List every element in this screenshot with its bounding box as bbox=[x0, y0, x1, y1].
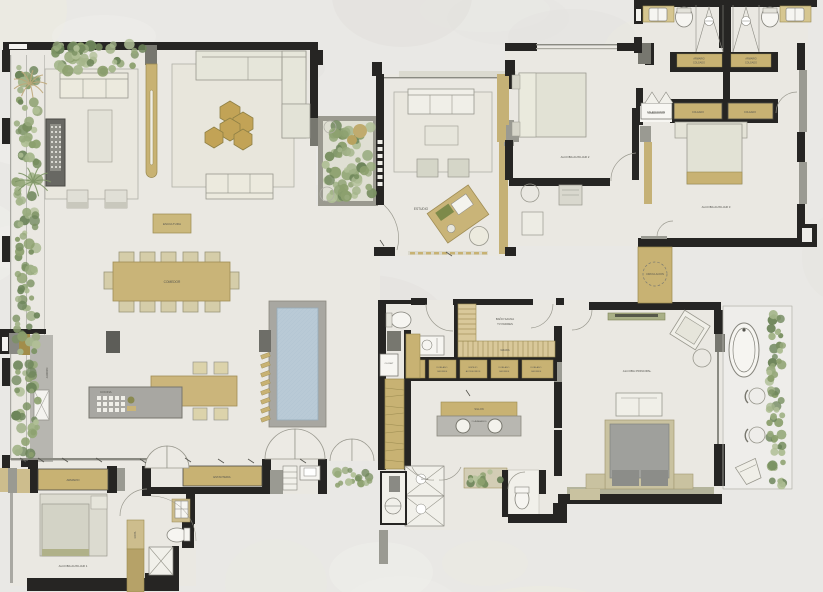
svg-text:ALCOBA PRINCIPAL: ALCOBA PRINCIPAL bbox=[623, 369, 652, 373]
svg-text:ACCESORIOS: ACCESORIOS bbox=[466, 370, 481, 373]
svg-text:CAJONES: CAJONES bbox=[437, 370, 448, 373]
svg-text:GRADA: GRADA bbox=[500, 348, 509, 352]
svg-text:DOBLADO: DOBLADO bbox=[531, 366, 542, 369]
svg-text:COMEDOR: COMEDOR bbox=[164, 280, 181, 284]
svg-text:CLOSET: CLOSET bbox=[385, 363, 394, 365]
svg-text:DOBLADO: DOBLADO bbox=[499, 366, 510, 369]
svg-text:DOBLADO: DOBLADO bbox=[437, 366, 448, 369]
svg-text:ESTUDIO: ESTUDIO bbox=[414, 207, 429, 211]
svg-text:TV PADRES: TV PADRES bbox=[497, 322, 513, 326]
svg-text:ARMARIO: ARMARIO bbox=[66, 478, 80, 482]
svg-text:ESTANTERIA: ESTANTERIA bbox=[213, 475, 230, 479]
svg-text:CALEFACCION: CALEFACCION bbox=[648, 112, 665, 115]
svg-text:ROPA: ROPA bbox=[134, 531, 137, 538]
svg-text:ARMARIO: ARMARIO bbox=[745, 58, 756, 61]
svg-text:COLGADO: COLGADO bbox=[744, 111, 756, 114]
svg-text:CAJONES: CAJONES bbox=[499, 370, 510, 373]
svg-text:BAÑO SAUNA: BAÑO SAUNA bbox=[496, 316, 514, 321]
svg-text:2 LAVAMANOS: 2 LAVAMANOS bbox=[471, 420, 487, 423]
svg-text:JARDIN: JARDIN bbox=[45, 368, 49, 379]
svg-text:COLGADO: COLGADO bbox=[745, 62, 757, 65]
svg-text:ARMARIO: ARMARIO bbox=[693, 58, 704, 61]
svg-text:ALCOBA AUXILIAR 1: ALCOBA AUXILIAR 1 bbox=[59, 564, 88, 568]
svg-text:COCINA: COCINA bbox=[100, 390, 112, 394]
svg-text:COLGADO: COLGADO bbox=[693, 62, 705, 65]
svg-text:CAJONES: CAJONES bbox=[531, 370, 542, 373]
svg-text:ESPEJO: ESPEJO bbox=[469, 367, 478, 369]
svg-text:CIRCULACION: CIRCULACION bbox=[646, 272, 664, 276]
svg-text:SILLON: SILLON bbox=[474, 407, 483, 411]
svg-text:ALCOBA AUXILIAR 2: ALCOBA AUXILIAR 2 bbox=[561, 155, 590, 159]
svg-text:ESCULTURA: ESCULTURA bbox=[163, 222, 181, 226]
svg-text:COLGADO: COLGADO bbox=[692, 111, 704, 114]
svg-text:ALCOBA AUXILIAR 3: ALCOBA AUXILIAR 3 bbox=[702, 205, 731, 209]
